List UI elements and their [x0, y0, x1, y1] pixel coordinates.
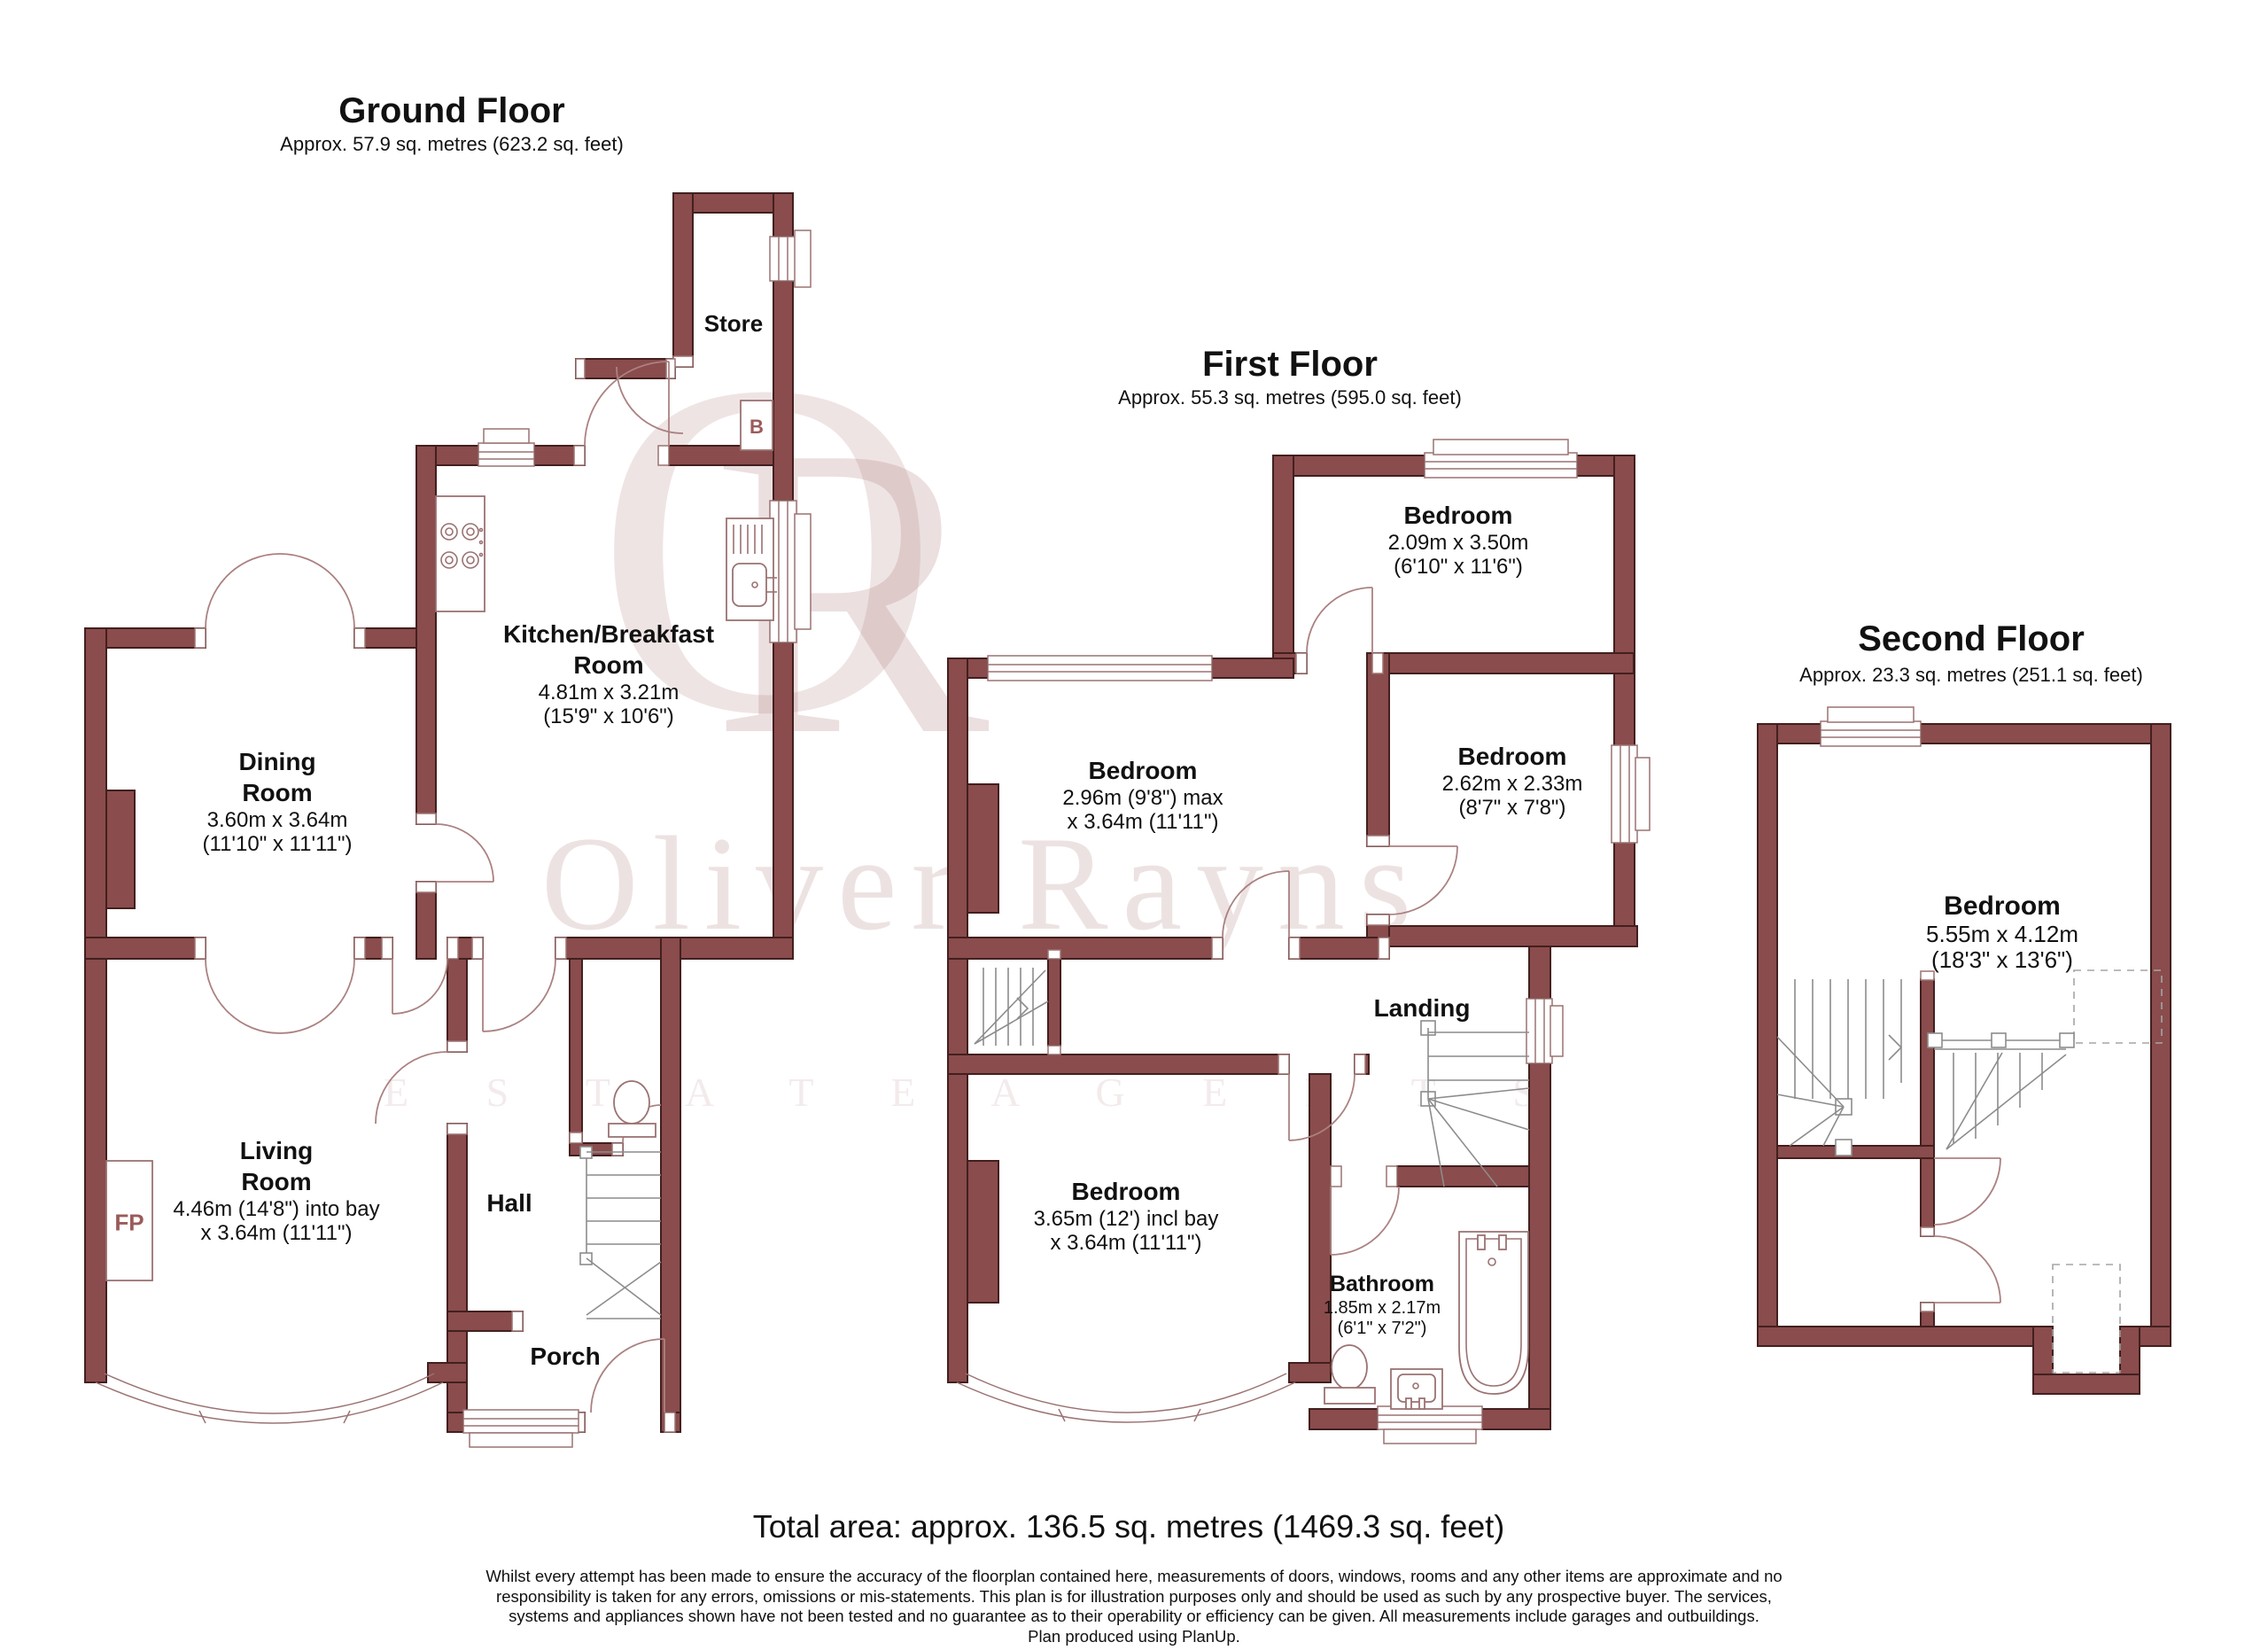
disclaimer-line-3: systems and appliances shown have not be…: [485, 1607, 1782, 1627]
room-label-kitchen: Kitchen/Breakfast Room 4.81m x 3.21m (15…: [503, 619, 714, 728]
room-label-bedroom-second: Bedroom 5.55m x 4.12m (18'3" x 13'6"): [1926, 891, 2078, 973]
room-label-dining: Dining Room 3.60m x 3.64m (11'10" x 11'1…: [203, 746, 353, 856]
room-label-bedroom-mid: Bedroom 2.96m (9'8") max x 3.64m (11'11"…: [1062, 755, 1223, 834]
disclaimer-line-1: Whilst every attempt has been made to en…: [485, 1567, 1782, 1587]
ground-floor-stairs: [580, 1147, 661, 1319]
second-floor-area: Approx. 23.3 sq. metres (251.1 sq. feet): [1799, 664, 2143, 687]
disclaimer-line-4: Plan produced using PlanUp.: [485, 1627, 1782, 1647]
wc-toilet-icon: [614, 1081, 649, 1124]
second-floor-windows: [1821, 707, 1921, 746]
room-label-bedroom-bottom: Bedroom 3.65m (12') incl bay x 3.64m (11…: [1034, 1176, 1219, 1255]
boiler-marker: B: [750, 416, 764, 439]
second-floor-plan: [1758, 707, 2171, 1394]
room-label-living: Living Room 4.46m (14'8") into bay x 3.6…: [173, 1135, 379, 1245]
second-floor-eaves: [2053, 970, 2162, 1373]
ground-floor-title: Ground Floor: [338, 91, 565, 131]
room-label-bathroom: Bathroom 1.85m x 2.17m (6'1" x 7'2"): [1324, 1271, 1441, 1339]
first-floor-doors: [1223, 588, 1457, 1255]
room-label-store: Store: [704, 308, 763, 339]
ground-floor-walls: [85, 193, 793, 1432]
first-floor-area: Approx. 55.3 sq. metres (595.0 sq. feet): [1118, 386, 1462, 409]
second-floor-doors: [1934, 1158, 2000, 1303]
total-area: Total area: approx. 136.5 sq. metres (14…: [753, 1508, 1504, 1545]
second-floor-title: Second Floor: [1858, 619, 2085, 659]
disclaimer: Whilst every attempt has been made to en…: [485, 1567, 1782, 1646]
fireplace-marker: FP: [114, 1210, 144, 1237]
first-floor-plan: [948, 440, 1650, 1444]
room-label-landing: Landing: [1374, 992, 1471, 1023]
bathroom-toilet-icon: [1332, 1345, 1367, 1389]
first-floor-title: First Floor: [1202, 345, 1378, 385]
room-label-bedroom-right: Bedroom 2.62m x 2.33m (8'7" x 7'8"): [1442, 741, 1583, 820]
ground-floor-plan: [85, 193, 811, 1447]
floorplan-page: { "watermark": { "monogram_o": "O", "mon…: [0, 0, 2268, 1650]
second-floor-walls: [1758, 724, 2171, 1394]
room-label-bedroom-top: Bedroom 2.09m x 3.50m (6'10" x 11'6"): [1388, 500, 1529, 579]
room-label-porch: Porch: [530, 1341, 600, 1372]
ground-floor-area: Approx. 57.9 sq. metres (623.2 sq. feet): [280, 133, 624, 156]
first-floor-door-jambs: [1048, 653, 1397, 1187]
disclaimer-line-2: responsibility is taken for any errors, …: [485, 1587, 1782, 1607]
room-label-hall: Hall: [486, 1187, 532, 1218]
